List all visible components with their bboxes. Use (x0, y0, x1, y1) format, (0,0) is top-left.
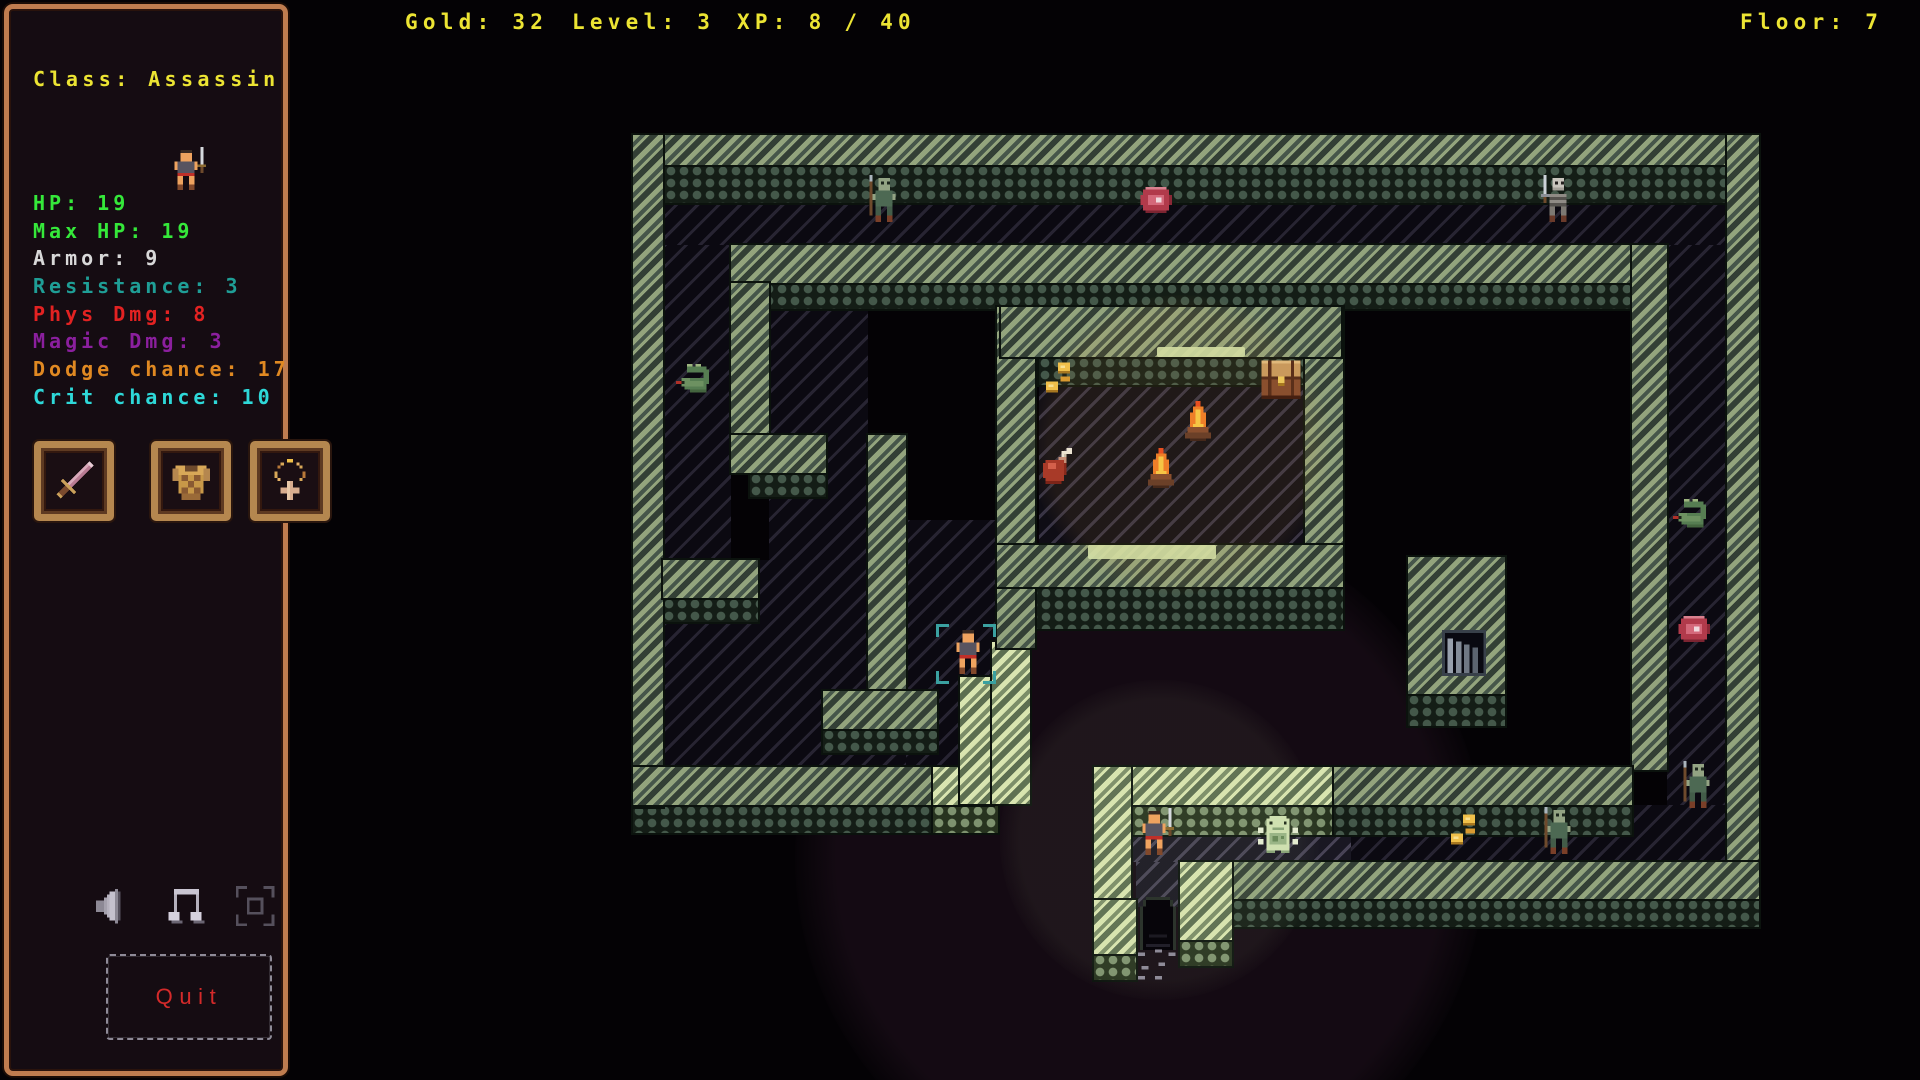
wall-face (1180, 940, 1232, 966)
music-icon[interactable] (163, 883, 207, 929)
stat-phys-dmg: Phys Dmg: 8 (33, 302, 283, 330)
stat-phys-dmg-value: 8 (177, 302, 209, 326)
class-label: Class: Assassin (33, 67, 280, 91)
character-panel: Class: Assassin HP: 19Max HP: 19Armor: 9… (4, 4, 288, 1076)
wall (663, 560, 758, 598)
character-portrait-icon (163, 147, 209, 197)
wall (1180, 862, 1232, 940)
wall (868, 435, 906, 691)
stat-armor: Armor: 9 (33, 246, 283, 274)
stat-crit-chance-label: Crit chance: (33, 385, 226, 409)
stat-max-hp-value: 19 (145, 219, 193, 243)
stat-max-hp: Max HP: 19 (33, 219, 283, 247)
wall-face (1001, 587, 1343, 629)
stat-dodge-chance: Dodge chance: 17 (33, 357, 283, 385)
snake-sprite[interactable] (676, 361, 720, 401)
coins-sprite[interactable] (1039, 360, 1077, 398)
wall-face (750, 473, 826, 497)
stat-armor-label: Armor: (33, 246, 129, 270)
skeleton-sprite[interactable] (1535, 175, 1581, 225)
equipment-slots (9, 441, 293, 525)
campfire-sprite (1140, 445, 1182, 491)
wall (1232, 862, 1759, 899)
wall (1094, 767, 1131, 917)
stat-crit-chance-value: 10 (226, 385, 274, 409)
wall (1632, 245, 1667, 770)
stat-dodge-chance-value: 17 (242, 357, 290, 381)
fullscreen-icon[interactable] (233, 883, 277, 929)
wall (997, 307, 1035, 648)
wall (992, 642, 1030, 804)
wall (633, 135, 663, 807)
wall (731, 245, 1662, 283)
audio-controls (9, 883, 293, 933)
wall-face (663, 598, 758, 622)
wall-face (823, 729, 937, 753)
stat-resistance-label: Resistance: (33, 274, 209, 298)
wall-face (1232, 899, 1759, 927)
amulet-slot[interactable] (250, 441, 330, 521)
ham-sprite[interactable] (1035, 448, 1077, 490)
stairs-sprite[interactable] (1134, 894, 1182, 950)
stat-armor-value: 9 (129, 246, 161, 270)
goblin-sprite[interactable] (1536, 807, 1582, 857)
wall (633, 767, 933, 805)
wall-face (750, 283, 1640, 309)
stat-phys-dmg-label: Phys Dmg: (33, 302, 177, 326)
stat-hp-label: HP: (33, 191, 81, 215)
stat-resistance-value: 3 (209, 274, 241, 298)
armor-slot[interactable] (151, 441, 231, 521)
stat-crit-chance: Crit chance: 10 (33, 385, 283, 413)
wall-face (1408, 694, 1505, 726)
stats-list: HP: 19Max HP: 19Armor: 9Resistance: 3Phy… (33, 191, 283, 413)
sound-icon[interactable] (93, 883, 137, 929)
stat-max-hp-label: Max HP: (33, 219, 145, 243)
stat-magic-dmg-value: 3 (193, 329, 225, 353)
snake-sprite[interactable] (1673, 496, 1717, 536)
goblin-sprite[interactable] (1675, 761, 1721, 811)
game-screen: Gold: 32 Level: 3 XP: 8 / 40 Floor: 7 Cl… (0, 0, 1920, 1080)
turtle-sprite[interactable] (1255, 810, 1301, 856)
wall (823, 691, 937, 729)
stat-hp: HP: 19 (33, 191, 283, 219)
wall (1727, 135, 1759, 899)
wall-face (933, 805, 998, 833)
steak-sprite[interactable] (1135, 182, 1177, 218)
stat-hp-value: 19 (81, 191, 129, 215)
chest-sprite[interactable] (1255, 354, 1307, 402)
lit-wall-cap (1157, 347, 1245, 357)
coins-sprite[interactable] (1444, 812, 1482, 850)
goblin-sprite[interactable] (861, 175, 907, 225)
stat-magic-dmg-label: Magic Dmg: (33, 329, 193, 353)
weapon-slot[interactable] (34, 441, 114, 521)
quit-button[interactable]: Quit (106, 954, 272, 1040)
stat-magic-dmg: Magic Dmg: 3 (33, 329, 283, 357)
stat-resistance: Resistance: 3 (33, 274, 283, 302)
lit-wall-cap (1088, 545, 1216, 559)
player-sword-character[interactable] (1131, 808, 1177, 858)
wall (1334, 767, 1632, 805)
crumbs-sprite (1128, 946, 1182, 986)
campfire-sprite (1177, 398, 1219, 444)
steak-sprite[interactable] (1673, 611, 1715, 647)
player-character[interactable] (945, 627, 991, 677)
wall-face (633, 805, 933, 833)
stat-dodge-chance-label: Dodge chance: (33, 357, 242, 381)
wall (731, 435, 826, 473)
wall-face (1334, 805, 1632, 835)
wall (633, 135, 1759, 165)
grate-sprite (1442, 630, 1486, 676)
